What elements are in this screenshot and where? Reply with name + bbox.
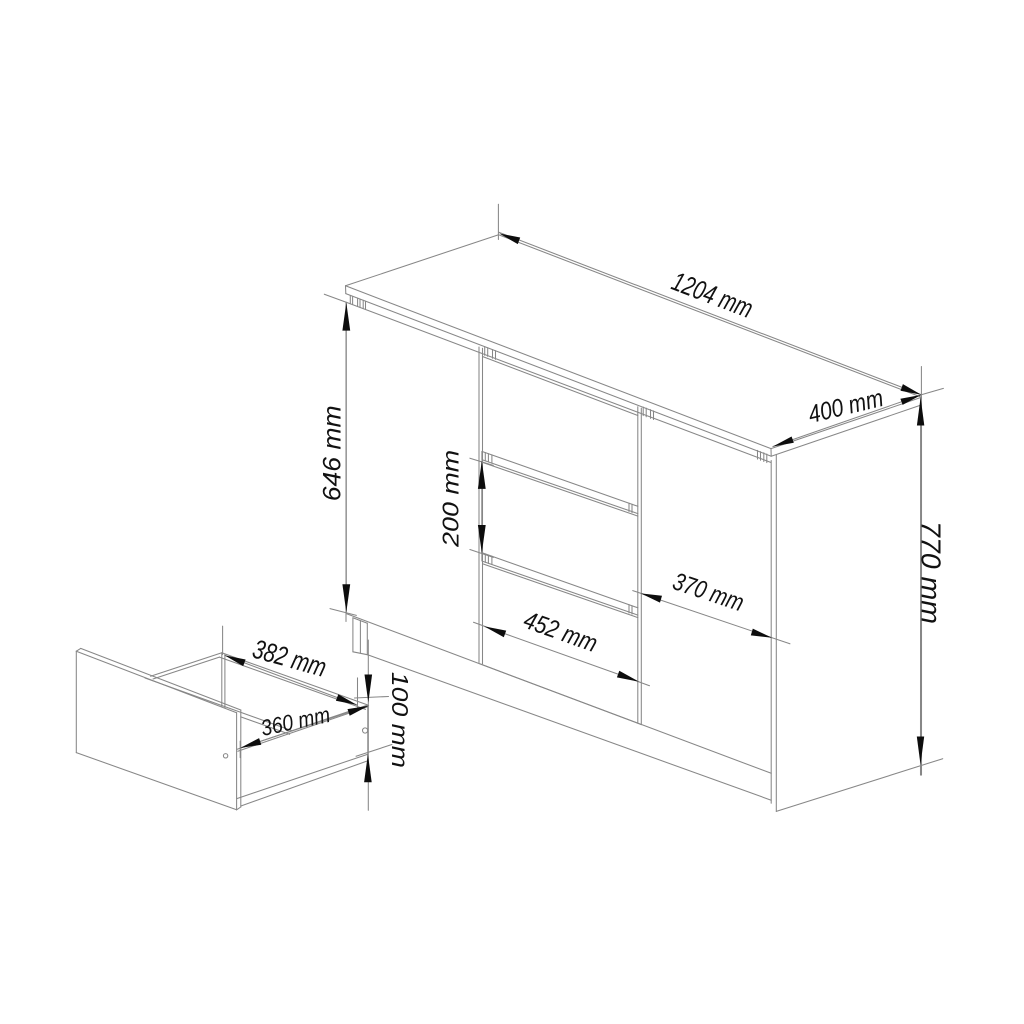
svg-text:200 mm: 200 mm xyxy=(438,450,464,548)
svg-text:646 mm: 646 mm xyxy=(318,405,346,501)
svg-text:770 mm: 770 mm xyxy=(915,521,946,624)
svg-text:100 mm: 100 mm xyxy=(387,672,413,768)
